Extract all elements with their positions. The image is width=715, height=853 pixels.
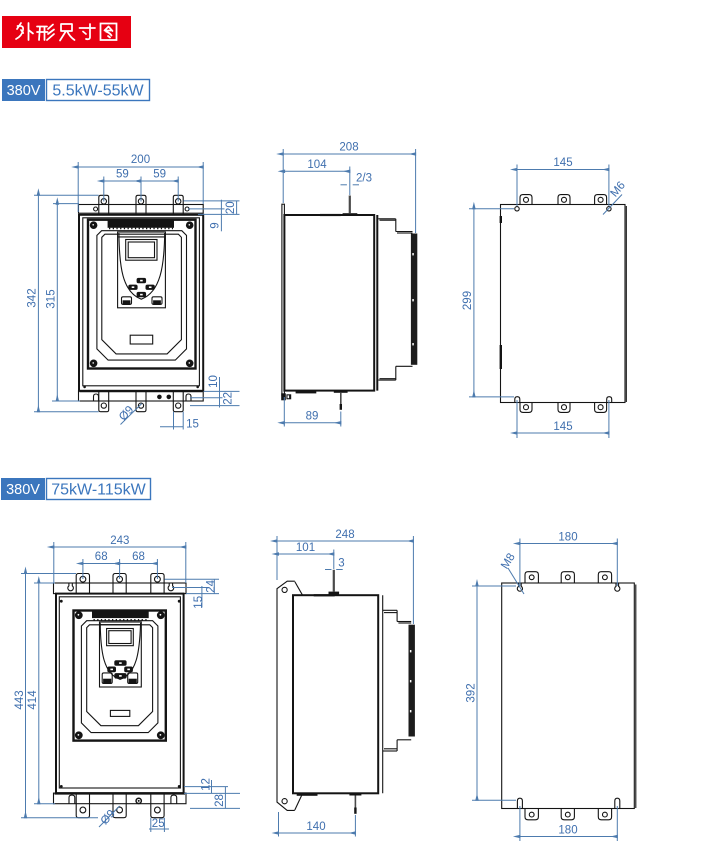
svg-text:10: 10	[208, 375, 220, 388]
svg-text:75kW-115kW: 75kW-115kW	[51, 482, 146, 499]
svg-text:Ø9: Ø9	[117, 404, 136, 423]
svg-text:140: 140	[306, 821, 325, 833]
svg-text:3: 3	[338, 558, 344, 570]
svg-text:15: 15	[193, 596, 205, 609]
svg-text:180: 180	[558, 825, 577, 837]
svg-text:200: 200	[131, 154, 150, 166]
svg-text:315: 315	[45, 289, 57, 308]
svg-text:68: 68	[95, 551, 108, 563]
svg-text:22: 22	[222, 392, 234, 405]
svg-text:299: 299	[462, 291, 474, 310]
svg-text:243: 243	[110, 535, 129, 547]
svg-text:145: 145	[553, 421, 572, 433]
svg-text:414: 414	[27, 690, 39, 710]
svg-text:101: 101	[296, 542, 315, 554]
svg-text:24: 24	[205, 579, 217, 592]
svg-text:59: 59	[116, 169, 129, 181]
svg-text:89: 89	[306, 410, 319, 422]
svg-text:68: 68	[132, 551, 145, 563]
svg-text:380V: 380V	[7, 83, 41, 99]
svg-text:145: 145	[553, 157, 572, 169]
svg-text:342: 342	[27, 288, 39, 307]
svg-text:M6: M6	[608, 180, 627, 200]
svg-text:392: 392	[465, 683, 477, 702]
svg-text:248: 248	[335, 529, 354, 541]
svg-text:M8: M8	[499, 551, 518, 571]
svg-text:25: 25	[152, 818, 165, 830]
svg-text:59: 59	[153, 169, 166, 181]
svg-text:104: 104	[307, 159, 327, 171]
svg-text:180: 180	[558, 532, 577, 544]
svg-text:2/3: 2/3	[356, 173, 372, 185]
svg-text:15: 15	[186, 418, 199, 430]
svg-text:208: 208	[339, 142, 358, 154]
svg-text:20: 20	[225, 201, 237, 214]
svg-text:9: 9	[210, 222, 222, 228]
svg-text:5.5kW-55kW: 5.5kW-55kW	[52, 83, 144, 100]
svg-text:380V: 380V	[6, 482, 40, 498]
svg-text:443: 443	[14, 690, 26, 709]
svg-text:28: 28	[214, 794, 226, 807]
svg-text:12: 12	[200, 778, 212, 791]
